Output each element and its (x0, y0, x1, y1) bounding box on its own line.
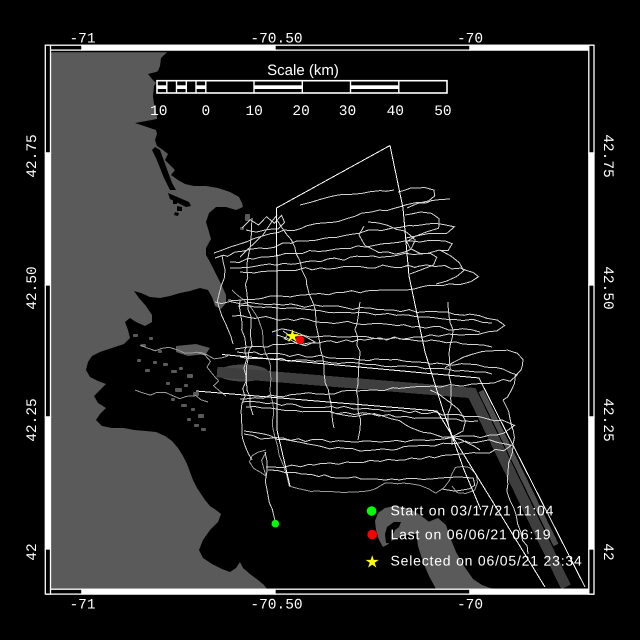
svg-text:Last on 06/06/21 06:19: Last on 06/06/21 06:19 (390, 526, 551, 542)
svg-text:42.75: 42.75 (25, 134, 41, 178)
svg-text:30: 30 (339, 104, 356, 120)
svg-text:42.25: 42.25 (25, 398, 41, 442)
svg-text:-70.50: -70.50 (250, 597, 302, 613)
svg-text:50: 50 (434, 104, 451, 120)
svg-text:42.75: 42.75 (599, 134, 615, 178)
svg-text:Selected on 06/05/21 23:34: Selected on 06/05/21 23:34 (390, 553, 582, 569)
svg-text:10: 10 (150, 104, 167, 120)
svg-text:Scale (km): Scale (km) (267, 62, 339, 79)
svg-text:-70.50: -70.50 (250, 31, 302, 47)
svg-text:42: 42 (25, 543, 41, 560)
svg-text:20: 20 (292, 104, 309, 120)
svg-text:40: 40 (387, 104, 404, 120)
svg-text:-71: -71 (69, 31, 95, 47)
svg-text:-70: -70 (457, 31, 483, 47)
svg-text:42.25: 42.25 (599, 398, 615, 442)
svg-text:42: 42 (599, 543, 615, 560)
svg-text:42.50: 42.50 (599, 266, 615, 310)
svg-text:0: 0 (201, 104, 210, 120)
svg-text:-71: -71 (69, 597, 95, 613)
svg-text:Start on 03/17/21 11:04: Start on 03/17/21 11:04 (390, 502, 554, 518)
svg-text:42.50: 42.50 (25, 266, 41, 310)
svg-text:10: 10 (245, 104, 262, 120)
svg-text:-70: -70 (457, 597, 483, 613)
